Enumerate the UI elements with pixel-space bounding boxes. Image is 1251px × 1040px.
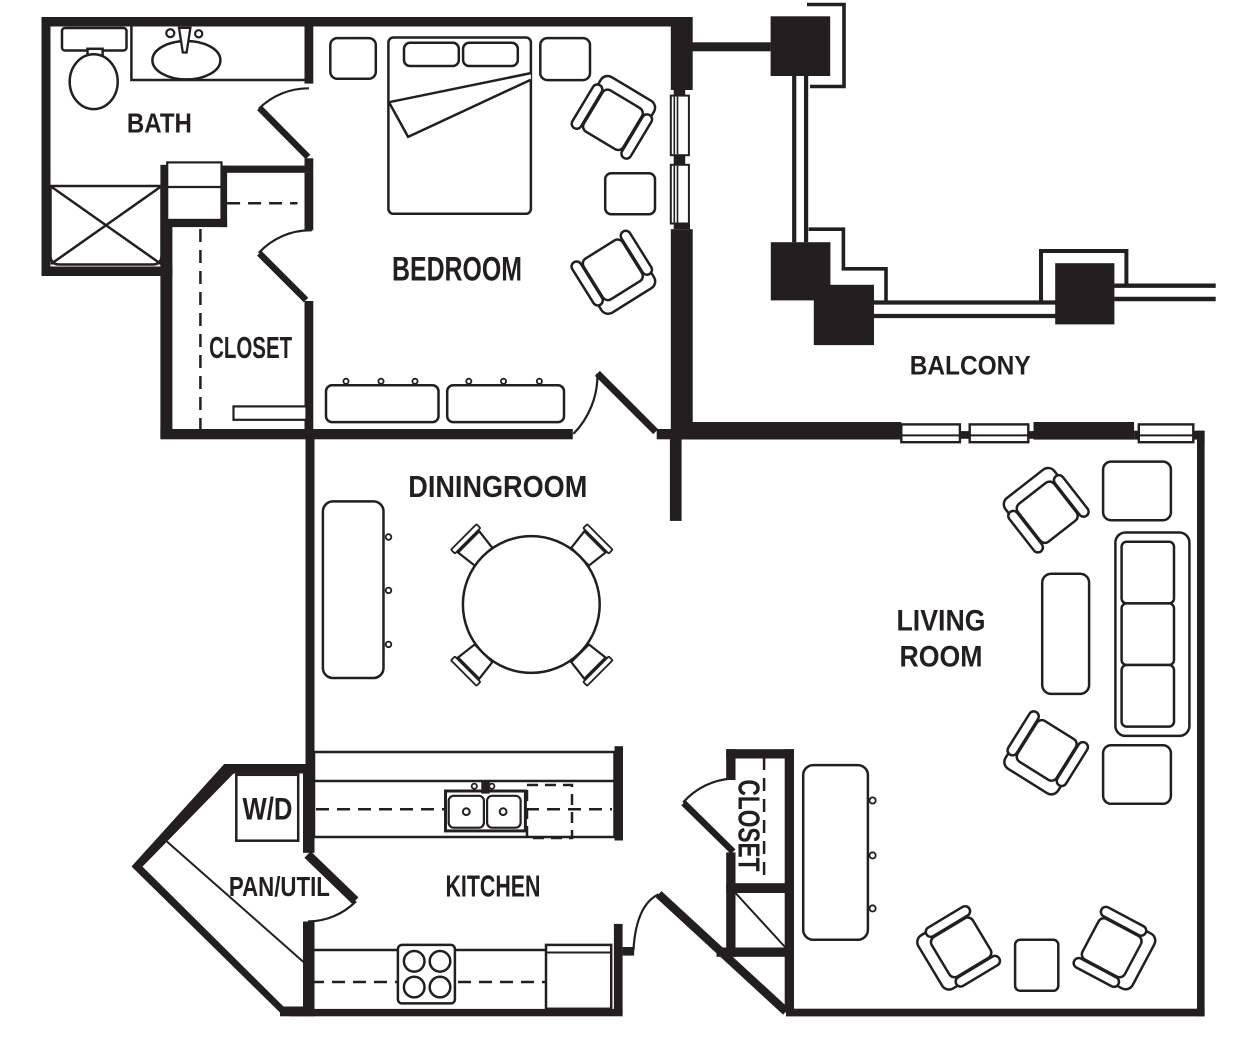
svg-text:W/D: W/D: [243, 792, 293, 827]
svg-text:BEDROOM: BEDROOM: [392, 251, 522, 289]
svg-text:BATH: BATH: [127, 107, 192, 138]
svg-text:DININGROOM: DININGROOM: [408, 471, 587, 504]
svg-text:KITCHEN: KITCHEN: [446, 871, 541, 904]
svg-text:CLOSET: CLOSET: [731, 780, 766, 872]
svg-text:CLOSET: CLOSET: [209, 331, 292, 365]
svg-text:LIVING: LIVING: [897, 605, 986, 638]
svg-text:ROOM: ROOM: [900, 641, 983, 674]
svg-text:BALCONY: BALCONY: [910, 351, 1031, 381]
svg-text:PAN/UTIL: PAN/UTIL: [229, 871, 330, 902]
